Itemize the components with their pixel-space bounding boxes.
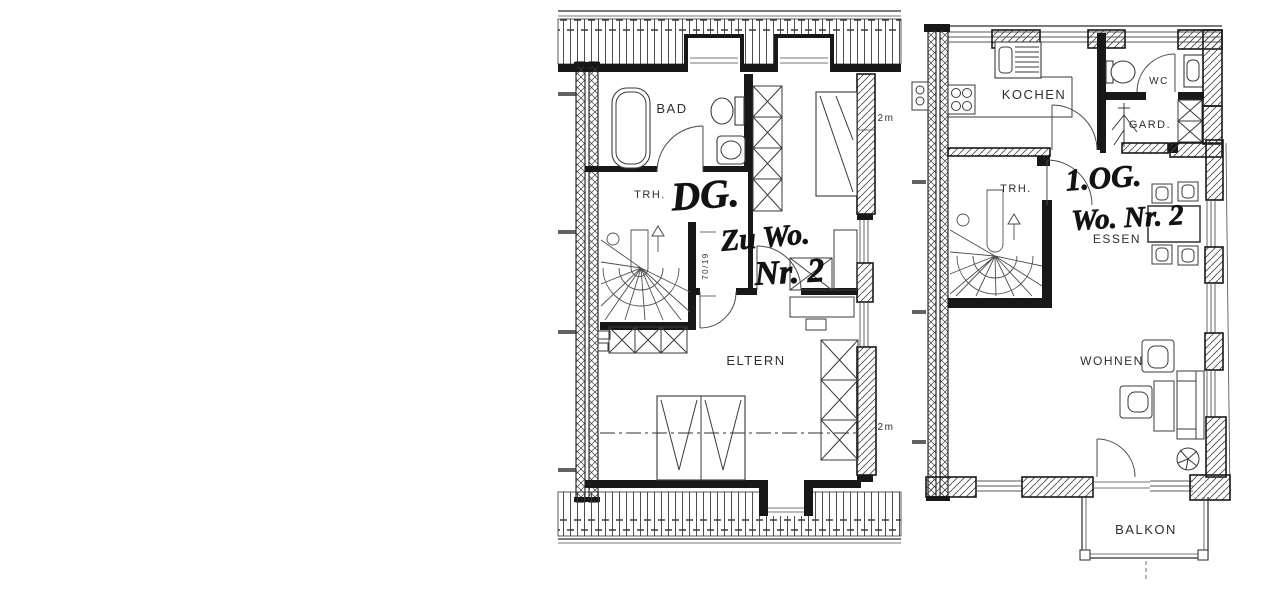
closet-box [753, 86, 782, 211]
eltern-wardrobe [821, 340, 858, 460]
room-label-trh-og: TRH. [1000, 183, 1032, 195]
dg-floor-plan: BAD TRH. ELTERN 2m 2m 70/19 DG. Zu Wo. N… [558, 11, 901, 543]
handwriting-nr2-dg: Nr. 2 [753, 252, 826, 293]
room-label-kochen: KOCHEN [1002, 87, 1067, 102]
double-bed [657, 396, 745, 480]
armchair [1120, 386, 1152, 418]
wc-sink [1184, 55, 1203, 87]
room-label-wohnen: WOHNEN [1080, 354, 1144, 368]
bathroom-sink [717, 136, 745, 164]
coffee-table [1154, 381, 1174, 431]
room-label-trh-dg: TRH. [634, 189, 666, 201]
room-label-balkon: BALKON [1115, 522, 1177, 537]
stool [806, 319, 826, 330]
dg-party-wall [558, 62, 600, 502]
kitchen-sink [995, 42, 1041, 78]
dining-chair [1178, 182, 1198, 201]
dg-closet-row [598, 327, 687, 353]
bathtub [612, 88, 650, 168]
room-label-eltern: ELTERN [726, 353, 785, 368]
handwriting-1og: 1.OG. [1064, 157, 1142, 197]
balcony [1080, 497, 1208, 580]
floorplan-canvas: BAD TRH. ELTERN 2m 2m 70/19 DG. Zu Wo. N… [0, 0, 1264, 606]
dg-dormer-top-1 [686, 36, 742, 72]
dg-roof-band-bottom [558, 480, 901, 543]
gard-closet [1178, 100, 1202, 142]
neighbor-stove-stub [912, 82, 928, 110]
room-label-gard: GARD. [1129, 119, 1171, 131]
dg-closet-column [753, 86, 782, 211]
room-label-bad: BAD [656, 101, 687, 116]
og-right-wall [1205, 140, 1230, 497]
og-party-wall [912, 30, 950, 501]
plant [1177, 448, 1199, 470]
dg-stair [601, 226, 690, 320]
bedroom-cabinet [834, 230, 857, 290]
dg-right-wall [857, 74, 876, 482]
door-dimension-note: 70/19 [701, 252, 710, 280]
handwriting-zu-wo: Zu Wo. [718, 217, 810, 258]
kitchen-door-arc [1052, 105, 1097, 150]
room-label-wc: WC [1149, 76, 1169, 87]
balcony-door-arc [1097, 439, 1135, 477]
dg-dormer-top-2 [776, 36, 832, 72]
handwriting-wo-nr2: Wo. Nr. 2 [1071, 199, 1185, 237]
og-top-wall [924, 24, 1222, 49]
dining-chair [1178, 246, 1198, 265]
handwriting-dg: DG. [669, 170, 741, 220]
stove [948, 85, 975, 114]
dining-chair [1152, 245, 1172, 264]
marker-2m-bottom: 2m [878, 422, 895, 433]
sofa [1177, 371, 1204, 439]
og-bottom-wall [926, 475, 1230, 500]
bad-door-arc [657, 126, 703, 172]
marker-2m-top: 2m [878, 113, 895, 124]
toilet [711, 97, 744, 125]
dg-dormer-bottom [759, 480, 813, 516]
og-floor-plan: KOCHEN WC GARD. TRH. ESSEN WOHNEN BALKON… [912, 24, 1230, 580]
armchair [1142, 340, 1174, 372]
dg-bed-single [816, 92, 857, 196]
dg-roof-band-top [558, 11, 901, 72]
desk [790, 297, 854, 317]
wc-toilet [1106, 61, 1135, 83]
